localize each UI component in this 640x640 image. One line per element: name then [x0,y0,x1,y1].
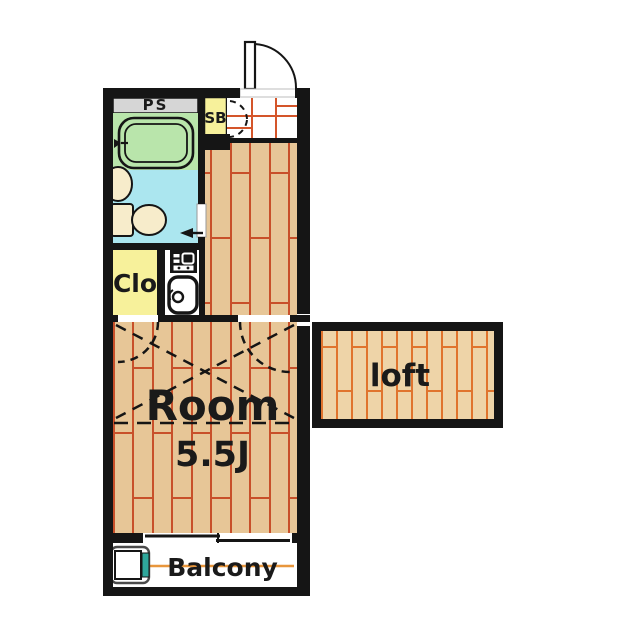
wall-closet-kitchen-divider [157,250,165,315]
balcony-label: Balcony [150,552,295,582]
shoe-box-label: SB [202,108,229,128]
floorplan-drawing [0,0,640,640]
wall-right-lower [297,326,310,596]
room-label: Room [130,383,295,427]
wall-entrance-step [227,138,297,143]
entrance-door-icon [240,42,297,97]
closet-door-opening [118,315,158,322]
hallway-kitchen-floor [205,143,297,315]
wall-below-shoebox [203,134,230,150]
toilet-icon [111,204,166,236]
wall-right-upper [297,88,310,314]
wall-room-bottom-right [292,533,310,543]
washing-machine-pan-icon [111,547,149,583]
wall-left [103,88,113,596]
wall-kitchen-right [199,250,205,315]
pipe-space-label: PS [113,97,198,113]
wall-room-bottom-left [103,533,143,543]
entrance-tile-area [227,98,297,138]
wall-bath-bottom [103,243,205,250]
wall-bath-right-lower [198,237,205,250]
loft-label: loft [340,356,460,396]
room-door-opening [238,315,290,322]
floorplan-canvas: PS SB Clo Room 5.5J loft Balcony [0,0,640,640]
balcony-sliding-window-icon [143,533,292,543]
wall-bottom [103,587,310,596]
closet-label: Clo [113,252,157,314]
stove-icon [170,250,197,273]
sink-icon [169,277,197,313]
room-size-label: 5.5J [130,435,295,475]
